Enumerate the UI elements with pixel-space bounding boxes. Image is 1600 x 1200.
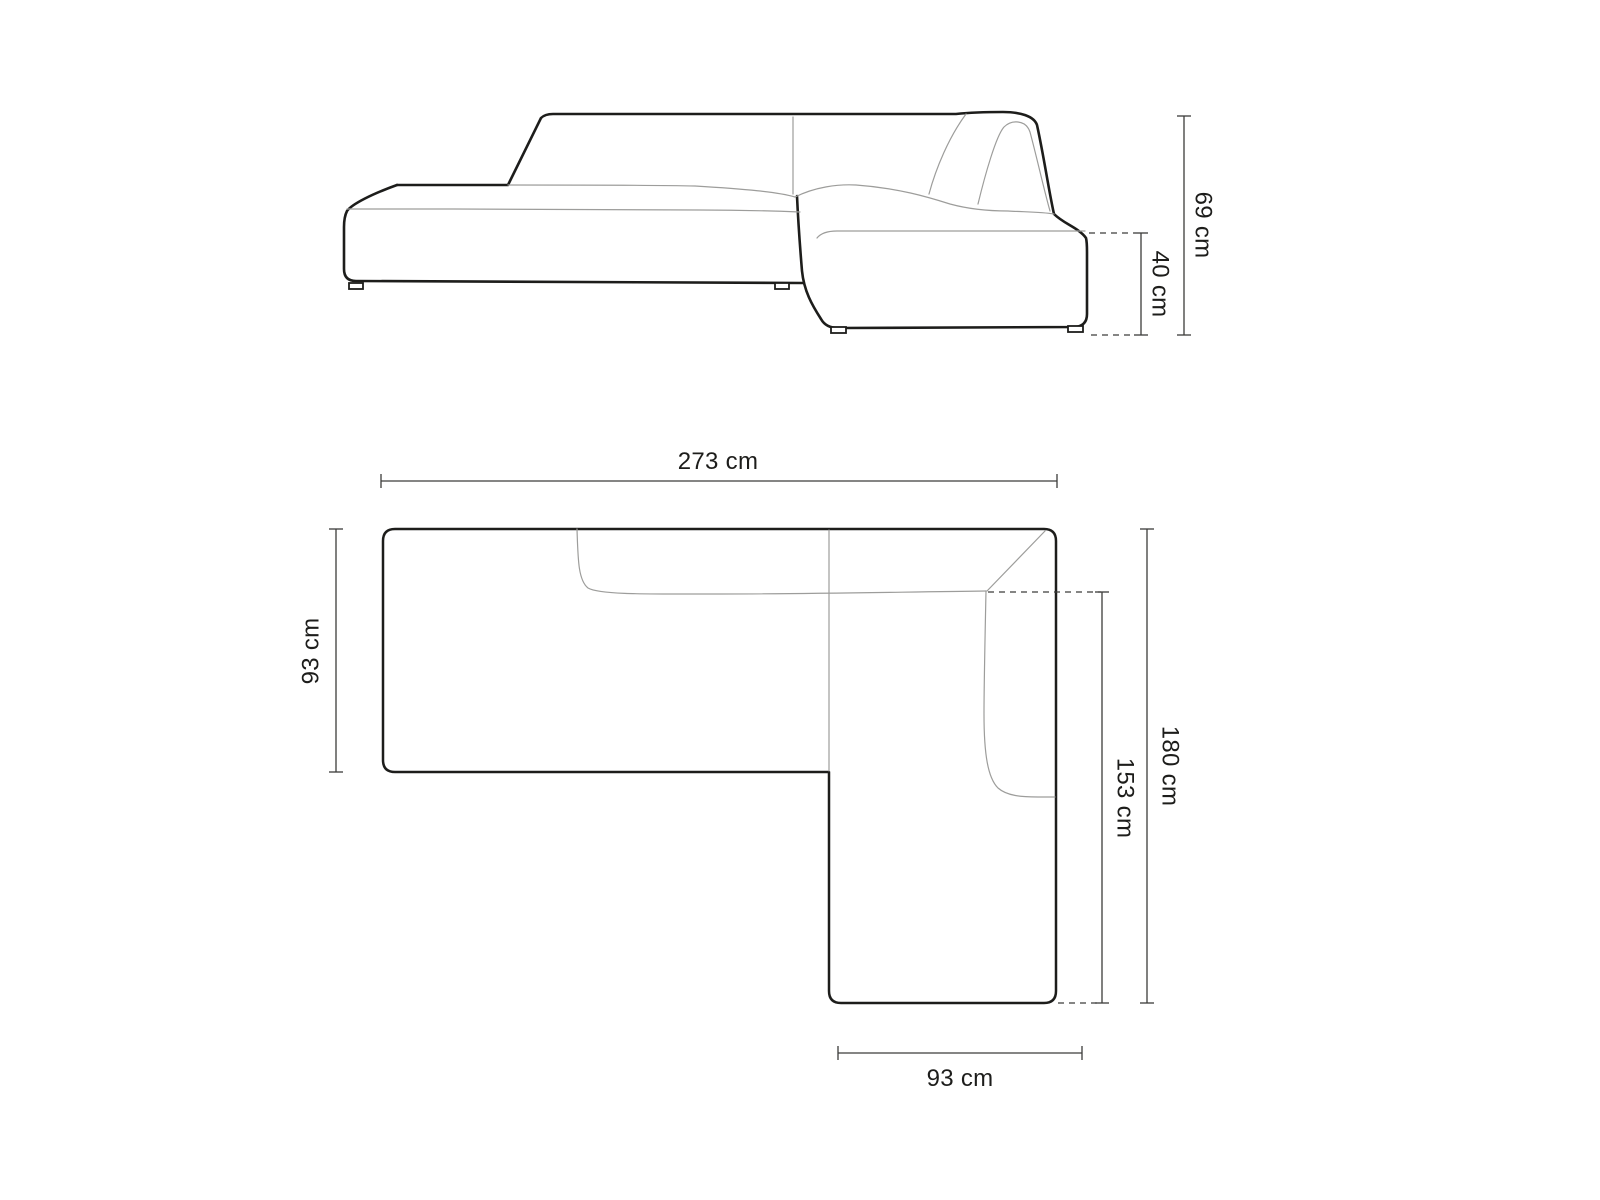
- side-seat-front-edge-line: [347, 209, 800, 212]
- total-width-label: 273 cm: [678, 448, 759, 475]
- dimension-seat-height: 40 cm: [1134, 233, 1174, 335]
- plan-backrest-line: [577, 529, 986, 594]
- side-seat-back-edge-line: [508, 185, 795, 197]
- left-depth-label: 93 cm: [297, 618, 324, 685]
- top-view: 273 cm 93 cm 153 cm 180 cm 9: [297, 448, 1183, 1092]
- total-depth-label: 180 cm: [1157, 726, 1184, 807]
- side-back-and-chaise-outline: [397, 112, 1087, 328]
- dimension-left-depth: 93 cm: [297, 529, 343, 772]
- sofa-foot: [1068, 326, 1083, 332]
- side-backrest-cushion-seam-line: [929, 114, 966, 194]
- sofa-dimension-diagram: 40 cm 69 cm 273 cm: [0, 0, 1600, 1200]
- dimension-total-depth: 180 cm: [1140, 529, 1184, 1003]
- sofa-foot: [831, 327, 846, 333]
- side-chaise-cushion-top-line: [795, 185, 1054, 214]
- plan-corner-diagonal-line: [987, 531, 1045, 591]
- dimension-chaise-depth: 153 cm: [1095, 592, 1139, 1003]
- chaise-width-label: 93 cm: [927, 1065, 994, 1092]
- side-view: 40 cm 69 cm: [344, 112, 1217, 335]
- side-left-end-and-base-outline: [344, 185, 803, 283]
- diagram-canvas: 40 cm 69 cm 273 cm: [0, 0, 1600, 1200]
- plan-chaise-backrest-line: [984, 591, 1055, 797]
- dimension-total-width: 273 cm: [381, 448, 1057, 488]
- dimension-total-height: 69 cm: [1177, 116, 1217, 335]
- seat-height-label: 40 cm: [1147, 251, 1174, 318]
- total-height-label: 69 cm: [1190, 192, 1217, 259]
- dimension-chaise-width: 93 cm: [838, 1046, 1082, 1092]
- side-chaise-front-top-edge-line: [817, 231, 1085, 238]
- chaise-depth-label: 153 cm: [1112, 758, 1139, 839]
- sofa-foot: [349, 283, 363, 289]
- sofa-foot: [775, 283, 789, 289]
- plan-outer-outline: [383, 529, 1056, 1003]
